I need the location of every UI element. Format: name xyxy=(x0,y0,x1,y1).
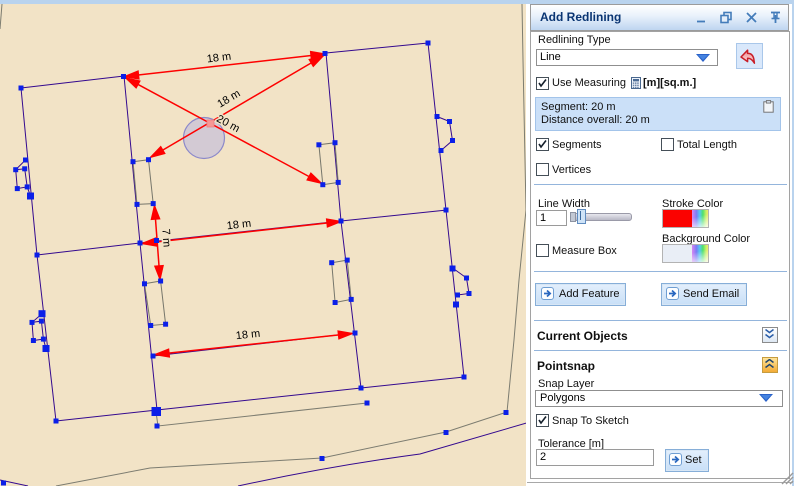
svg-text:18 m: 18 m xyxy=(235,328,261,342)
svg-text:7 m: 7 m xyxy=(159,228,172,247)
